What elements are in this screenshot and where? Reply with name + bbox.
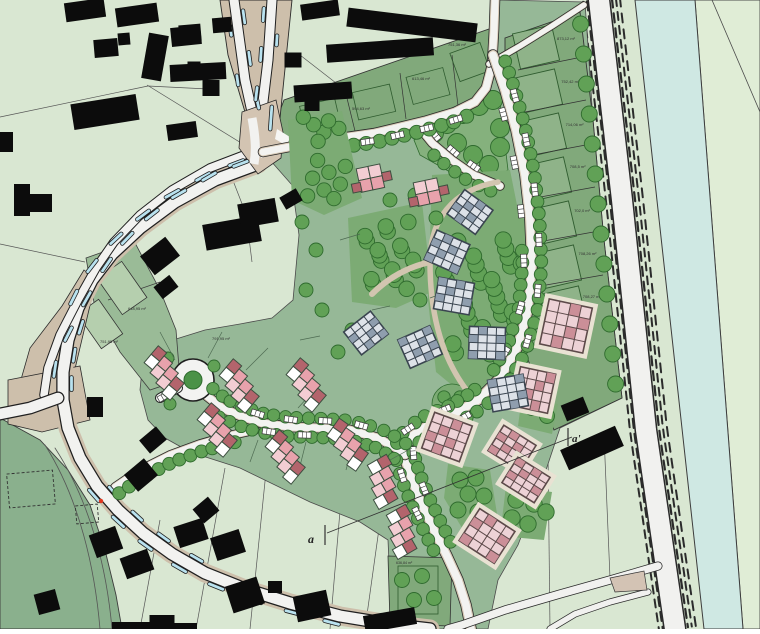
svg-text:648,95 m²: 648,95 m² bbox=[128, 306, 147, 311]
svg-text:752,42 m²: 752,42 m² bbox=[561, 79, 580, 84]
svg-text:791,95 m²: 791,95 m² bbox=[212, 336, 231, 341]
svg-text:751,36 m²: 751,36 m² bbox=[448, 42, 467, 47]
svg-text:702,0 m²: 702,0 m² bbox=[574, 208, 590, 213]
svg-text:613,46 m²: 613,46 m² bbox=[412, 76, 431, 81]
svg-text:636,84 m²: 636,84 m² bbox=[396, 561, 413, 565]
svg-text:714,06 m²: 714,06 m² bbox=[566, 122, 585, 127]
svg-text:708,26 m²: 708,26 m² bbox=[579, 251, 598, 256]
svg-text:594,63 m²: 594,63 m² bbox=[352, 106, 371, 111]
svg-text:751,95 m²: 751,95 m² bbox=[100, 339, 119, 344]
svg-text:873,12 m²: 873,12 m² bbox=[557, 36, 576, 41]
svg-text:a: a bbox=[308, 532, 314, 546]
svg-text:a': a' bbox=[572, 433, 581, 445]
svg-text:708,5 m²: 708,5 m² bbox=[570, 164, 586, 169]
